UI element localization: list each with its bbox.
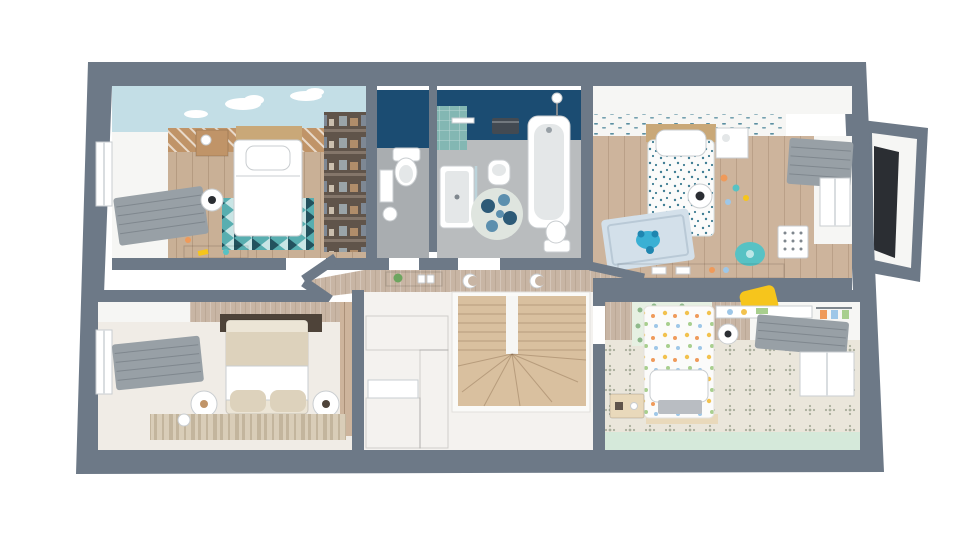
pedestal-sink	[488, 160, 510, 185]
bedroom3-mint-floor-band	[605, 432, 860, 450]
light-switch	[427, 275, 434, 283]
bay-window-glass-panel	[874, 146, 899, 258]
bedroom2-nightstand	[716, 128, 748, 158]
master-ball-lamp	[178, 414, 190, 426]
master-pillow-right	[270, 390, 306, 412]
shower-arm	[452, 118, 474, 123]
wall-bed3-top	[605, 290, 860, 302]
wc-navy-wall	[377, 90, 429, 148]
wall-bath-bed2	[581, 86, 593, 268]
bedroom3-bed-base	[658, 400, 702, 414]
floral-rug	[471, 188, 523, 240]
walk-in-shower	[440, 166, 476, 228]
wall-bed1-hall-left	[112, 258, 286, 270]
bedroom3-bed	[644, 306, 718, 424]
wall-master-top	[98, 290, 324, 302]
master-nightstand-left	[191, 391, 217, 417]
bedroom1-clock	[201, 135, 211, 145]
wall-master-hall	[352, 290, 364, 450]
dressing-wardrobe-shelves	[324, 112, 366, 252]
plant	[394, 274, 403, 283]
staircase	[452, 292, 590, 412]
wc-room	[377, 90, 429, 258]
bedroom1-bed	[234, 126, 302, 236]
bedroom2-wall-organiser	[778, 226, 808, 258]
wc-picture-frame	[380, 170, 393, 202]
floorplan-render	[0, 0, 960, 540]
master-bed	[226, 320, 308, 414]
light-switch	[418, 275, 425, 283]
bedroom2-pillow	[656, 130, 706, 156]
bedroom3-toy-box	[610, 394, 644, 418]
wall-wc-bath-hall	[419, 258, 458, 270]
bedroom1-pillow	[246, 146, 290, 170]
wall-bath-hall	[500, 258, 593, 270]
wall-hall-bed3-lower	[593, 344, 605, 450]
bedroom1-nightstand	[196, 130, 228, 156]
wall-hall-bed3-upper	[593, 290, 605, 306]
towel-rail	[492, 118, 519, 134]
wall-wc-bath	[429, 86, 437, 252]
master-curtain	[112, 336, 204, 391]
wardrobe-inner-shelf	[368, 380, 418, 398]
floorplan-stage	[0, 0, 960, 540]
master-top-wall-white	[98, 302, 190, 322]
master-nightstand-right	[313, 391, 339, 417]
master-bedroom	[96, 302, 352, 450]
wall-bed2-bottom	[593, 278, 852, 290]
stair-divider-wall	[506, 296, 518, 354]
bedroom-3	[605, 284, 860, 450]
bathtub	[528, 116, 570, 228]
bedroom2-ceiling-band	[593, 86, 852, 114]
bathroom	[437, 90, 581, 258]
wc-pedestal-bin	[383, 207, 397, 221]
shower-tile-wall	[437, 106, 467, 150]
bedroom3-pillow	[650, 370, 708, 402]
wall-bed1-wc	[366, 86, 377, 260]
master-pillow-left	[230, 390, 266, 412]
